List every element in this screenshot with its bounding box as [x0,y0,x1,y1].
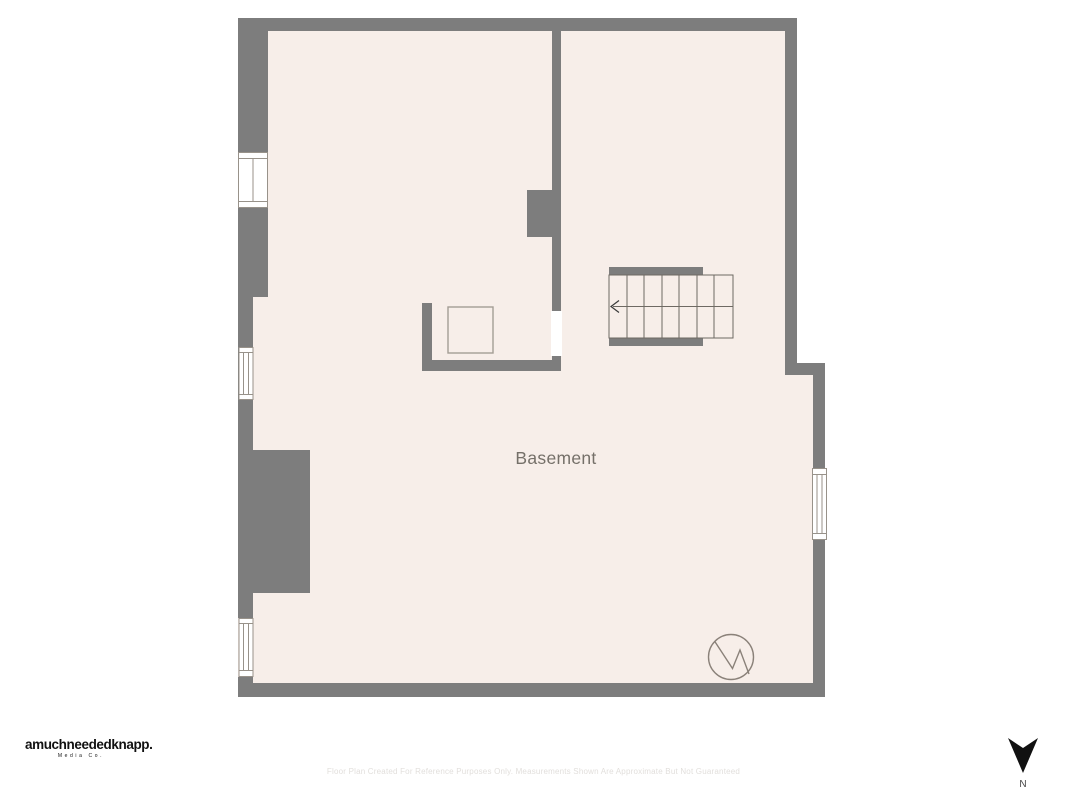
stair-wall-bottom [609,338,703,346]
room-label: Basement [515,448,596,468]
wall-segment [238,18,797,31]
appliance-square [448,307,493,353]
wall-segment [785,363,825,375]
wall-segment [238,208,268,297]
wall-segment [238,593,253,618]
wall-segment [238,450,310,593]
page-canvas: Basement N amuchneededknapp. Media Co. F… [0,0,1067,800]
wall-segment [238,18,268,153]
floor-plan: Basement N [0,0,1067,800]
wall-segment [785,18,797,363]
window [239,619,253,677]
north-arrow-icon: N [1008,738,1038,790]
wall-segment [813,375,825,470]
wall-segment [422,303,432,363]
staircase [609,275,733,338]
disclaimer-text: Floor Plan Created For Reference Purpose… [0,767,1067,776]
wall-segment [813,540,825,697]
door-opening [551,311,562,356]
north-label: N [1019,779,1026,790]
window [239,348,253,400]
wall-segment [238,683,825,697]
floor-area [238,18,825,697]
window [239,153,268,208]
wall-segment [527,190,552,237]
wall-segment [552,31,561,311]
logo-tagline: Media Co. [25,753,137,759]
company-logo: amuchneededknapp. Media Co. [25,737,137,759]
logo-wordmark: amuchneededknapp. [25,737,137,752]
wall-segment [422,360,561,371]
window [813,469,827,540]
stair-wall-top [609,267,703,275]
